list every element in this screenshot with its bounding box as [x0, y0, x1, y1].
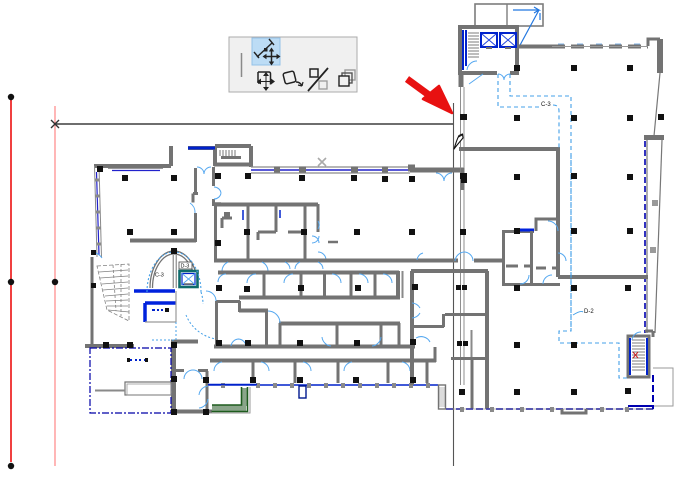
svg-text:D-2: D-2 — [584, 309, 594, 315]
svg-text:C-3: C-3 — [155, 273, 164, 279]
svg-text:C-3: C-3 — [541, 102, 551, 108]
svg-text:D-3: D-3 — [181, 264, 190, 270]
